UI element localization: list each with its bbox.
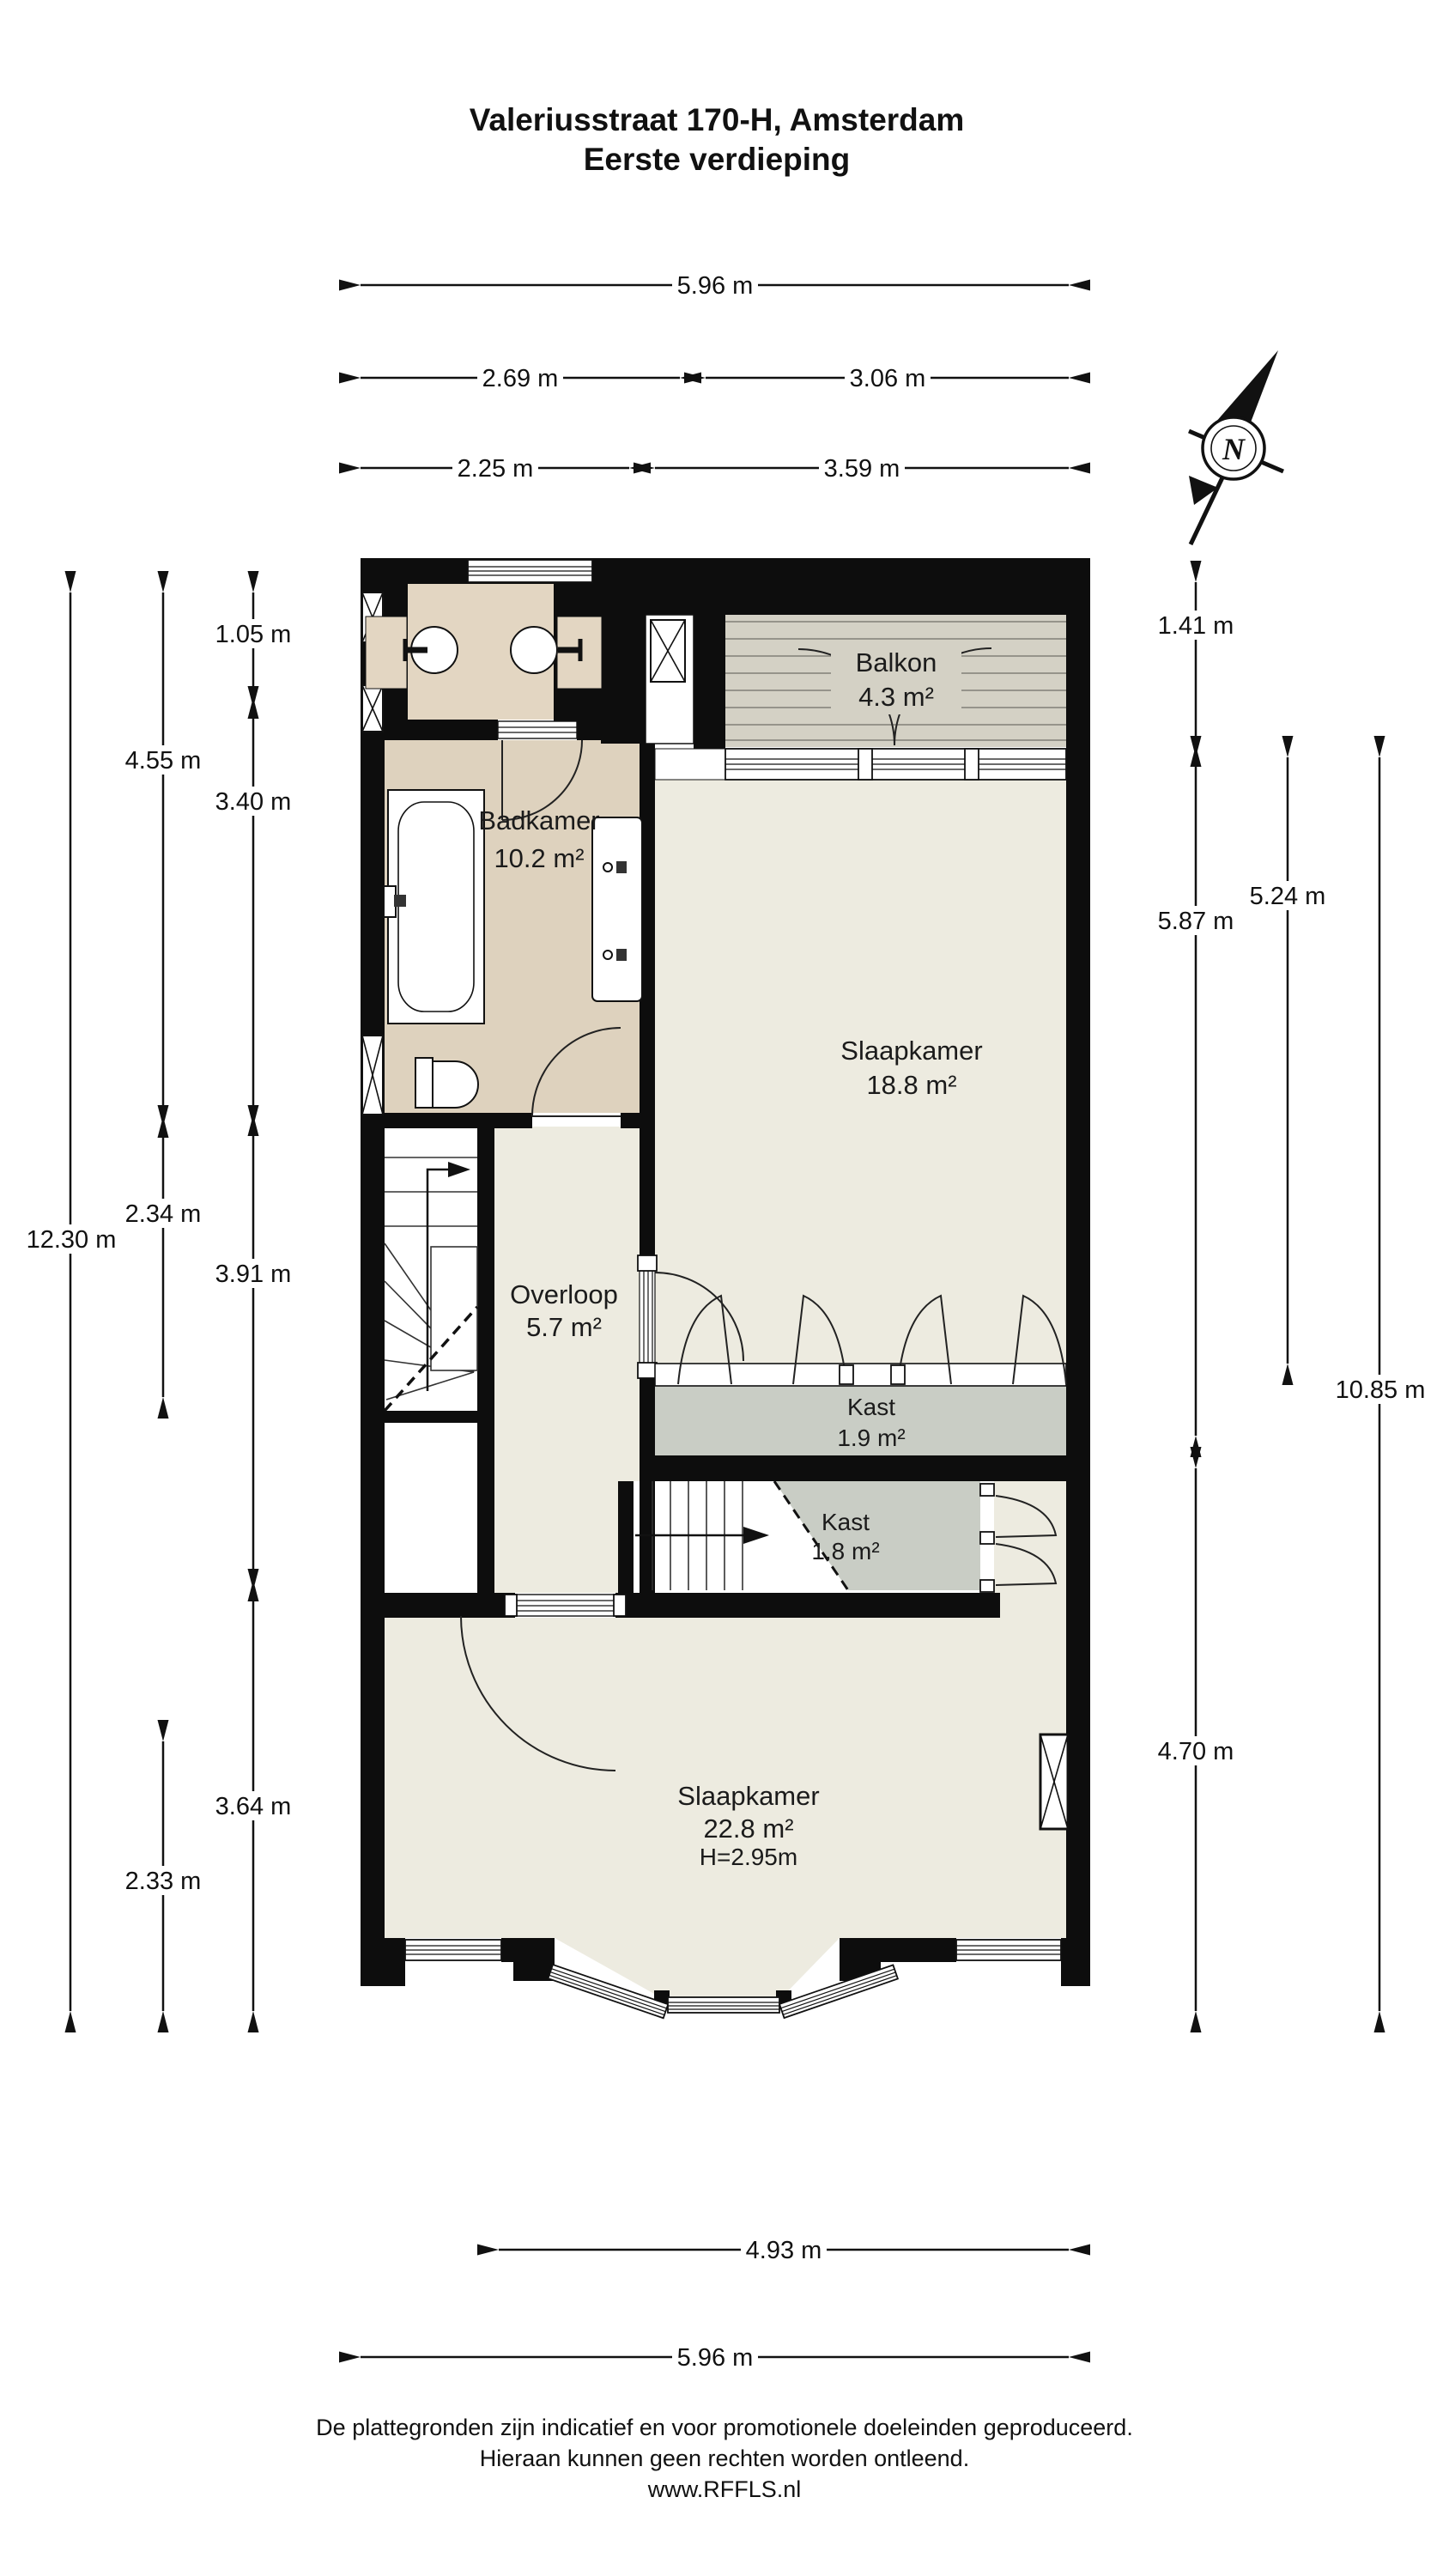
window-bottom-left — [405, 1940, 501, 1960]
sink-right — [511, 627, 557, 673]
dim-top-269: 2.69 m — [361, 363, 680, 392]
svg-text:10.85 m: 10.85 m — [1336, 1376, 1426, 1404]
niche-left — [366, 617, 407, 689]
floorplan-page: Valeriusstraat 170-H, Amsterdam Eerste v… — [0, 0, 1449, 2576]
dim-left-233: 2.33 m — [120, 1741, 206, 2011]
sill-corner — [655, 749, 725, 780]
slaapkamer1-name: Slaapkamer — [840, 1036, 982, 1066]
svg-text:4.70 m: 4.70 m — [1158, 1738, 1234, 1765]
badkamer-name: Badkamer — [478, 805, 599, 835]
void-lower — [385, 1423, 477, 1593]
overloop-floor — [494, 1127, 640, 1593]
kast2-name: Kast — [822, 1509, 870, 1535]
svg-text:5.96 m: 5.96 m — [677, 272, 754, 300]
dim-right-587: 5.87 m — [1153, 757, 1239, 1436]
dim-bottom-493: 4.93 m — [499, 2235, 1069, 2264]
svg-text:1.05 m: 1.05 m — [215, 621, 292, 648]
svg-text:2.25 m: 2.25 m — [458, 455, 534, 483]
dim-right-1085: 10.85 m — [1330, 757, 1431, 2011]
dim-left-1230: 12.30 m — [21, 592, 122, 2011]
dim-left-340: 3.40 m — [210, 708, 296, 1115]
dim-bottom-596: 5.96 m — [361, 2342, 1069, 2372]
radiator-xbox — [1040, 1735, 1068, 1829]
svg-text:12.30 m: 12.30 m — [27, 1226, 117, 1254]
window-bottom-right — [956, 1940, 1061, 1960]
svg-text:2.34 m: 2.34 m — [125, 1200, 202, 1228]
slaapkamer2-height: H=2.95m — [700, 1844, 797, 1870]
dim-left-105: 1.05 m — [210, 592, 296, 697]
footer-line2: Hieraan kunnen geen rechten worden ontle… — [480, 2445, 969, 2471]
balkon-area: 4.3 m² — [858, 682, 934, 712]
kast2-floor — [774, 1481, 980, 1590]
slaapkamer2-name: Slaapkamer — [677, 1781, 819, 1811]
dim-left-391: 3.91 m — [210, 1127, 296, 1580]
svg-text:3.06 m: 3.06 m — [850, 365, 926, 392]
overloop-area: 5.7 m² — [526, 1312, 602, 1342]
svg-text:5.87 m: 5.87 m — [1158, 908, 1234, 935]
slaapkamer1-area: 18.8 m² — [866, 1070, 956, 1100]
toilet — [415, 1058, 478, 1108]
dim-top-225: 2.25 m — [361, 453, 629, 483]
bathroom-cabinet — [592, 817, 642, 1001]
badkamer-area: 10.2 m² — [494, 843, 584, 873]
svg-text:2.69 m: 2.69 m — [482, 365, 559, 392]
slaapkamer1-floor — [655, 780, 1066, 1364]
svg-text:3.64 m: 3.64 m — [215, 1793, 292, 1820]
footer-line1: De plattegronden zijn indicatief en voor… — [316, 2415, 1133, 2440]
floorplan-svg: Valeriusstraat 170-H, Amsterdam Eerste v… — [0, 0, 1449, 2576]
footer-website: www.RFFLS.nl — [647, 2476, 802, 2502]
svg-text:4.93 m: 4.93 m — [746, 2237, 822, 2264]
column-xbox-1 — [651, 620, 685, 682]
dim-top-359: 3.59 m — [655, 453, 1069, 483]
bath-tap-icon — [394, 895, 406, 907]
title-line2: Eerste verdieping — [584, 142, 851, 177]
footer-disclaimer: De plattegronden zijn indicatief en voor… — [316, 2415, 1133, 2502]
dim-left-234: 2.34 m — [120, 1127, 206, 1397]
dim-left-364: 3.64 m — [210, 1590, 296, 2011]
title-line1: Valeriusstraat 170-H, Amsterdam — [470, 102, 965, 137]
svg-text:3.40 m: 3.40 m — [215, 788, 292, 816]
dim-left-455: 4.55 m — [120, 592, 206, 1116]
kast1-area: 1.9 m² — [837, 1425, 905, 1451]
window-balkon-row — [725, 749, 1066, 780]
page-title: Valeriusstraat 170-H, Amsterdam Eerste v… — [470, 102, 965, 177]
annex-door-frame — [498, 721, 577, 738]
window-annex-top — [468, 560, 592, 582]
dim-right-141: 1.41 m — [1153, 582, 1239, 745]
svg-text:2.33 m: 2.33 m — [125, 1868, 202, 1895]
kast2-area: 1.8 m² — [811, 1538, 879, 1564]
dim-right-524: 5.24 m — [1245, 757, 1331, 1364]
column-xbox-3 — [362, 685, 383, 732]
svg-text:1.41 m: 1.41 m — [1158, 612, 1234, 640]
kast1-name: Kast — [847, 1394, 895, 1420]
svg-text:4.55 m: 4.55 m — [125, 747, 202, 775]
column-xbox-4 — [362, 1036, 383, 1115]
bay-window-bottom — [668, 1997, 779, 2013]
slaapkamer2-upper-floor — [994, 1481, 1066, 1618]
svg-text:5.96 m: 5.96 m — [677, 2344, 754, 2372]
svg-text:3.59 m: 3.59 m — [824, 455, 900, 483]
svg-text:3.91 m: 3.91 m — [215, 1261, 292, 1288]
dim-right-470: 4.70 m — [1153, 1468, 1239, 2011]
dim-top-306: 3.06 m — [706, 363, 1069, 392]
slaapkamer2-area: 22.8 m² — [703, 1814, 793, 1844]
bathtub — [384, 790, 484, 1024]
dim-top-596: 5.96 m — [361, 270, 1069, 300]
overloop-name: Overloop — [510, 1279, 618, 1309]
slaapkamer2-floor — [385, 1618, 1066, 1938]
svg-text:5.24 m: 5.24 m — [1250, 883, 1326, 910]
compass-icon: N — [1189, 350, 1283, 544]
balkon-name: Balkon — [856, 647, 937, 677]
compass-north-label: N — [1222, 432, 1246, 466]
